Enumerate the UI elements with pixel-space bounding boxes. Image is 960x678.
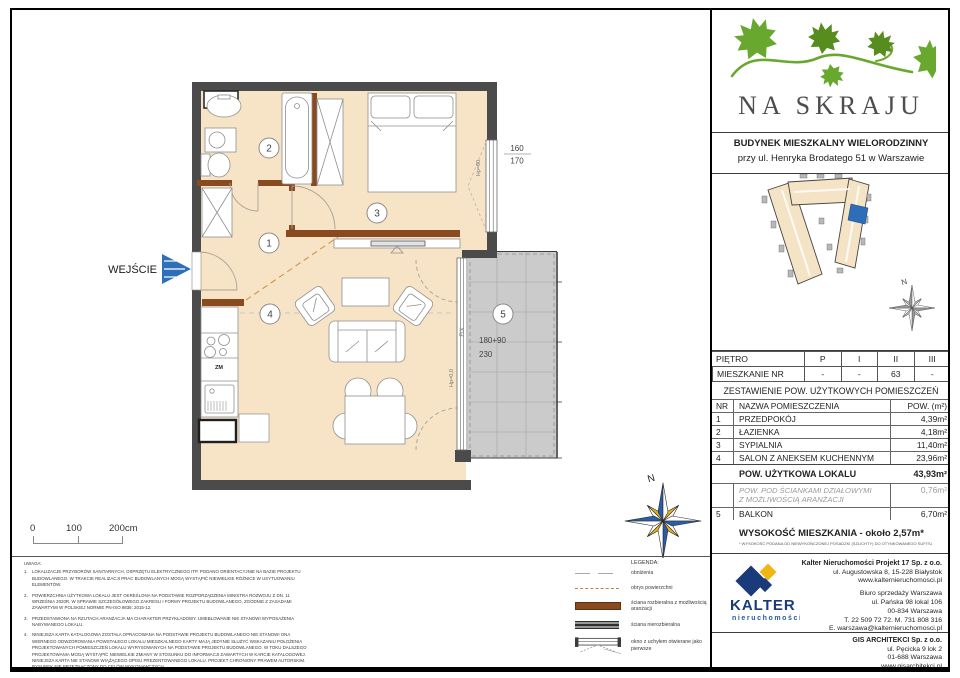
header-nr: NR <box>712 400 734 412</box>
room-row: 4 SALON Z ANEKSEM KUCHENNYM 23,96m² <box>712 451 950 464</box>
label-zm: ZM <box>215 365 223 371</box>
building-address: przy ul. Henryka Brodatego 51 w Warszawi… <box>712 152 950 167</box>
gis-addr1: ul. Pęcicka 9 lok 2 <box>712 646 942 655</box>
room-name: PRZEDPOKÓJ <box>734 413 890 425</box>
dim-window-170: 170 <box>510 157 524 166</box>
total-area-value: 43,93m² <box>913 469 947 479</box>
legend-row: ściana nierozbieralna <box>575 621 707 629</box>
site-plan-section: N <box>712 174 950 351</box>
area-table-title: ZESTAWIENIE POW. UŻYTKOWYCH POMIESZCZEŃ <box>712 381 950 399</box>
apt-col-1: - <box>841 366 878 381</box>
gis-company: GIS ARCHITEKCI Sp. z o.o. <box>712 636 942 645</box>
legend-title: LEGENDA: <box>631 560 707 566</box>
highlighted-unit <box>848 204 868 224</box>
room-name: ŁAZIENKA <box>734 426 890 438</box>
legend-row: obniżenia <box>575 570 707 577</box>
room-3-badge: 3 <box>374 209 380 220</box>
apt-col-3: - <box>914 366 951 381</box>
legend-row: obrys powierzchni <box>575 585 707 592</box>
note-num: 3. <box>24 616 32 629</box>
floor-table: PIĘTRO P I II III MIESZKANIE NR - - 63 - <box>712 351 950 381</box>
gis-website: www.gisarchitekci.pl <box>712 663 942 672</box>
legend-sample-fixed-wall <box>575 621 621 629</box>
room-nr: 1 <box>712 413 734 425</box>
partition-label-1: POW. POD ŚCIANKAMI DZIAŁOWYMI <box>739 486 887 495</box>
legend-label: obrys powierzchni <box>631 585 673 592</box>
label-hp-window: Hp=60 <box>476 160 482 176</box>
partition-label-2: Z MOŻLIWOŚCIĄ ARANŻACJI <box>739 495 887 504</box>
project-name: NA SKRAJU <box>712 91 950 121</box>
room-row: 3 SYPIALNIA 11,40m² <box>712 438 950 451</box>
total-area-row: POW. UŻYTKOWA LOKALU 43,93m² <box>712 464 950 483</box>
floor-col-2: II <box>877 351 914 366</box>
legend-label: obniżenia <box>631 570 653 577</box>
partition-row: POW. POD ŚCIANKAMI DZIAŁOWYMI Z MOŻLIWOŚ… <box>712 483 950 507</box>
balcony-nr: 5 <box>712 508 734 520</box>
kalter-addr3: 00-834 Warszawa <box>802 608 942 617</box>
note-text: NINIEJSZA KARTA KATALOGOWA ZOSTAŁA OPRAC… <box>32 632 310 670</box>
logo-section: NA SKRAJU <box>712 8 950 133</box>
legend-block: LEGENDA: obniżenia obrys powierzchni ści… <box>575 560 707 663</box>
scale-tick-100: 100 <box>66 523 82 534</box>
note-text: PRZEDSTAWIONA NA RZUTACH ARANŻACJA MA CH… <box>32 616 310 629</box>
room-area: 4,18m² <box>890 426 950 438</box>
legend-label: ściana rozbieralna z możliwością aranżac… <box>631 600 707 614</box>
note-text: LOKALIZACJE PRZYBORÓW SANITARNYCH, OSPRZ… <box>32 569 310 588</box>
room-5-badge: 5 <box>500 310 506 321</box>
entrance-label: WEJŚCIE <box>108 263 157 276</box>
balcony-window-wall <box>457 258 467 450</box>
legend-sample-drop <box>575 573 621 574</box>
balcony-row: 5 BALKON 6,70m² <box>712 507 950 520</box>
scale-tick-0: 0 <box>30 523 35 534</box>
kalter-email: E. warszawa@kalternieruchomosci.pl <box>802 625 942 634</box>
room-row: 2 ŁAZIENKA 4,18m² <box>712 425 950 438</box>
area-table-header: NR NAZWA POMIESZCZENIA POW. (m²) <box>712 399 950 412</box>
kalter-office: Biuro sprzedaży Warszawa <box>802 590 942 599</box>
kalter-website: www.kalternieruchomosci.pl <box>802 577 942 586</box>
header-area: POW. (m²) <box>890 400 950 412</box>
legend-sample-window <box>575 637 621 655</box>
apt-row-label: MIESZKANIE NR <box>712 366 804 381</box>
room-nr: 4 <box>712 452 734 464</box>
dim-window-160: 160 <box>510 144 524 153</box>
site-compass-icon: N <box>889 277 935 331</box>
room-area: 23,96m² <box>890 452 950 464</box>
site-compass-north: N <box>900 277 908 287</box>
legend-label: ściana nierozbieralna <box>631 622 680 629</box>
kalter-addr2: ul. Pańska 98 lokal 106 <box>802 599 942 608</box>
room-name: SYPIALNIA <box>734 439 890 451</box>
gis-addr2: 01-688 Warszawa <box>712 654 942 663</box>
note-item: 2. POWIERZCHNIA UŻYTKOWA LOKALU JEST OKR… <box>24 593 310 612</box>
scale-bar: 0 100 200cm <box>33 523 125 544</box>
apt-number: 63 <box>877 366 914 381</box>
apt-col-p: - <box>804 366 841 381</box>
building-type: BUDYNEK MIESZKALNY WIELORODZINNY <box>712 137 950 152</box>
legend-label: okno z uchyłem otwierane jako pierwsze <box>631 639 707 653</box>
floor-col-p: P <box>804 351 841 366</box>
kalter-phone: T. 22 509 72 72. M. 731 808 316 <box>802 617 942 626</box>
architect-section: GIS ARCHITEKCI Sp. z o.o. ul. Pęcicka 9 … <box>712 633 950 672</box>
kalter-logo-icon: KALTER nieruchomości <box>724 564 800 624</box>
kalter-addr1: ul. Augustowska 8, 15-228 Białystok <box>802 569 942 578</box>
room-4-badge: 4 <box>267 310 273 321</box>
panel-spacer <box>712 546 950 553</box>
room-nr: 2 <box>712 426 734 438</box>
room-row: 1 PRZEDPOKÓJ 4,39m² <box>712 412 950 425</box>
note-text: POWIERZCHNIA UŻYTKOWA LOKALU JEST OKREŚL… <box>32 593 310 612</box>
balcony-area-value: 6,70m² <box>890 508 950 520</box>
total-label: POW. UŻYTKOWA LOKALU <box>739 469 856 479</box>
room-name: SALON Z ANEKSEM KUCHENNYM <box>734 452 890 464</box>
catalog-card-page: WEJŚCIE 1 2 3 4 5 160 170 Hp=60 FIX Hp=0… <box>0 0 960 678</box>
apartment-height-section: WYSOKOŚĆ MIESZKANIA - około 2,57m* * WYS… <box>712 520 950 546</box>
dim-balcony-width: 180+90 <box>479 336 506 345</box>
floor-col-1: I <box>841 351 878 366</box>
kalter-company: Kalter Nieruchomości Projekt 17 Sp. z o.… <box>802 559 942 568</box>
legend-sample-outline <box>575 588 621 589</box>
entrance-opening <box>192 252 201 290</box>
floor-col-3: III <box>914 351 951 366</box>
building-info-section: BUDYNEK MIESZKALNY WIELORODZINNY przy ul… <box>712 133 950 174</box>
height-text: WYSOKOŚĆ MIESZKANIA - około 2,57m* <box>739 528 950 539</box>
floor-row-label: PIĘTRO <box>712 351 804 366</box>
floor-plan: WEJŚCIE 1 2 3 4 5 160 170 Hp=60 FIX Hp=0… <box>0 0 710 558</box>
compass-rose: N <box>625 473 701 558</box>
bottom-divider <box>12 556 710 557</box>
legend-row: ściana rozbieralna z możliwością aranżac… <box>575 600 707 614</box>
label-fix: FIX <box>460 327 466 336</box>
notes-block: UWAGA: 1. LOKALIZACJE PRZYBORÓW SANITARN… <box>24 561 310 675</box>
building-site-plan: N <box>712 174 950 350</box>
room-area: 4,39m² <box>890 413 950 425</box>
kalter-wordmark: KALTER <box>730 597 796 614</box>
note-num: 1. <box>24 569 32 588</box>
note-item: 4. NINIEJSZA KARTA KATALOGOWA ZOSTAŁA OP… <box>24 632 310 670</box>
room-1-badge: 1 <box>266 239 272 250</box>
header-name: NAZWA POMIESZCZENIA <box>734 400 890 412</box>
partition-area-value: 0,76m² <box>890 484 950 507</box>
ivy-vine-logo-icon <box>726 14 936 88</box>
room-nr: 3 <box>712 439 734 451</box>
scale-tick-200: 200cm <box>109 523 138 534</box>
legend-row: okno z uchyłem otwierane jako pierwsze <box>575 637 707 655</box>
note-item: 1. LOKALIZACJE PRZYBORÓW SANITARNYCH, OS… <box>24 569 310 588</box>
room-area: 11,40m² <box>890 439 950 451</box>
area-table: NR NAZWA POMIESZCZENIA POW. (m²) 1 PRZED… <box>712 399 950 520</box>
entrance-arrow <box>162 254 191 284</box>
label-hp-balcony: Hp=0,0 <box>449 369 455 387</box>
info-panel: NA SKRAJU BUDYNEK MIESZKALNY WIELORODZIN… <box>710 8 950 672</box>
dim-balcony-depth: 230 <box>479 350 493 359</box>
kalter-sub: nieruchomości <box>732 615 800 622</box>
developer-section: KALTER nieruchomości Kalter Nieruchomośc… <box>712 553 950 633</box>
room-2-badge: 2 <box>266 144 272 155</box>
note-item: 3. PRZEDSTAWIONA NA RZUTACH ARANŻACJA MA… <box>24 616 310 629</box>
notes-title: UWAGA: <box>24 561 310 567</box>
kalter-logo: KALTER nieruchomości <box>724 564 800 629</box>
scale-bar-bracket <box>33 536 123 544</box>
note-num: 4. <box>24 632 32 670</box>
balcony-name: BALKON <box>734 508 890 520</box>
note-num: 2. <box>24 593 32 612</box>
window-symbol-icon <box>575 637 621 655</box>
kalter-address: Kalter Nieruchomości Projekt 17 Sp. z o.… <box>802 559 942 634</box>
legend-sample-removable-wall <box>575 602 621 610</box>
compass-north-label: N <box>646 473 656 485</box>
